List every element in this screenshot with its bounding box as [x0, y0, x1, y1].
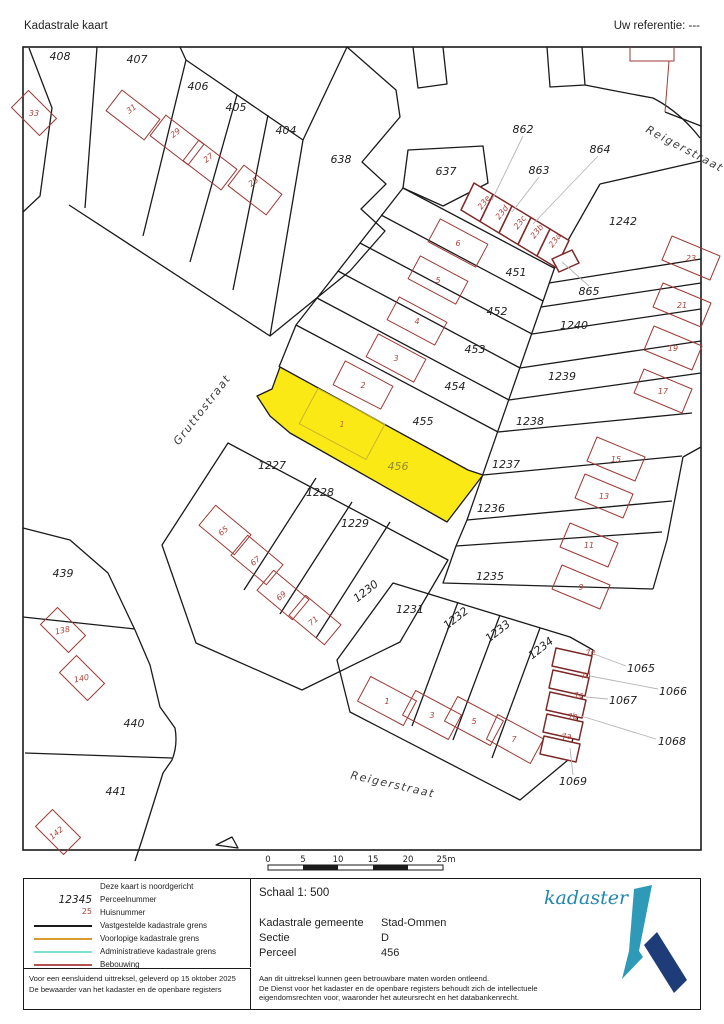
parcel-number-1238: 1238 [516, 415, 544, 428]
house-number-3: 3 [393, 354, 398, 363]
house-number-19: 19 [668, 344, 678, 353]
svg-text:15: 15 [368, 855, 379, 865]
house-number-21: 21 [677, 301, 687, 310]
street-name-Reigerstraat: Reigerstraat [349, 769, 436, 801]
house-number-71: 71 [307, 614, 321, 627]
house-number-31: 31 [125, 102, 139, 115]
black-line-sample [34, 925, 92, 927]
street-name-Reigerstraat: Reigerstraat [644, 123, 724, 175]
parcel-number-441: 441 [106, 785, 127, 798]
parcel-number-sample: 12345 [24, 894, 92, 906]
svg-text:25m: 25m [436, 855, 455, 865]
legend-row-voorlopige-grens: Voorlopige kadastrale grens [24, 933, 250, 945]
parcel-number-1228: 1228 [306, 486, 334, 499]
parcel-number-439: 439 [53, 567, 74, 580]
house-number-27: 27 [202, 151, 216, 165]
disclaimer-text: Aan dit uittreksel kunnen geen betrouwba… [259, 974, 574, 1003]
parcel-number-1231: 1231 [396, 603, 424, 616]
parcel-number-455: 455 [413, 415, 434, 428]
parcel-number-864: 864 [590, 143, 611, 156]
info-panel: Deze kaart is noordgericht 12345 Perceel… [23, 878, 701, 1010]
house-number-sample: 25 [24, 907, 92, 916]
red-line-sample [34, 964, 92, 966]
kadaster-logo: kadaster [544, 883, 694, 1003]
house-number-7e: 7e [585, 647, 596, 657]
house-number-11: 11 [584, 541, 594, 550]
parcel-number-453: 453 [465, 343, 486, 356]
house-number-25: 25 [247, 175, 261, 188]
cadastral-map: 4084074064054046386378628638648654514524… [0, 0, 724, 885]
house-number-5: 5 [435, 276, 440, 285]
svg-text:5: 5 [300, 855, 305, 865]
legend-row-north: Deze kaart is noordgericht [24, 881, 250, 893]
parcel-number-456: 456 [388, 460, 409, 473]
house-number-7c: 7c [573, 690, 584, 700]
parcel-number-638: 638 [331, 153, 352, 166]
house-number-23: 23 [686, 254, 696, 263]
legend: Deze kaart is noordgericht 12345 Perceel… [24, 879, 251, 967]
house-number-1: 1 [339, 420, 344, 429]
detail-row-perceel: Perceel456 [259, 947, 559, 962]
house-number-33: 33 [29, 109, 39, 118]
parcel-number-1235: 1235 [476, 570, 504, 583]
legend-row-administratieve-grens: Administratieve kadastrale grens [24, 946, 250, 958]
svg-text:0: 0 [265, 855, 270, 865]
orange-line-sample [34, 938, 92, 940]
parcel-number-863: 863 [529, 164, 550, 177]
house-number-13: 13 [599, 492, 609, 501]
parcel-number-454: 454 [445, 380, 466, 393]
parcel-number-865: 865 [579, 285, 600, 298]
parcel-number-408: 408 [50, 50, 71, 63]
house-number-67: 67 [249, 554, 263, 568]
house-number-6: 6 [455, 239, 460, 248]
parcel-number-862: 862 [513, 123, 534, 136]
parcel-number-1065: 1065 [627, 662, 655, 675]
house-number-65: 65 [217, 524, 231, 537]
parcel-number-452: 452 [487, 305, 508, 318]
house-number-4: 4 [414, 317, 419, 326]
svg-text:10: 10 [333, 855, 344, 865]
map-canvas: 4084074064054046386378628638648654514524… [0, 0, 724, 880]
parcel-number-637: 637 [436, 165, 457, 178]
house-number-17: 17 [658, 387, 669, 396]
parcel-number-1069: 1069 [559, 775, 587, 788]
legend-row-huisnummer: 25 Huisnummer [24, 907, 250, 919]
parcel-number-1068: 1068 [658, 735, 686, 748]
parcel-number-1240: 1240 [560, 319, 588, 332]
house-number-15: 15 [611, 455, 621, 464]
kadaster-logo-mark [544, 883, 694, 1003]
house-number-1: 1 [384, 697, 389, 706]
house-number-142: 142 [48, 825, 65, 842]
legend-row-perceelnummer: 12345 Perceelnummer [24, 894, 250, 906]
house-number-140: 140 [73, 673, 90, 685]
parcel-number-1239: 1239 [548, 370, 576, 383]
parcel-number-1242: 1242 [609, 215, 637, 228]
parcel-number-405: 405 [226, 101, 247, 114]
strip-parcels [461, 183, 592, 762]
parcel-number-407: 407 [127, 53, 148, 66]
detail-row-sectie: SectieD [259, 932, 559, 947]
house-number-2: 2 [360, 381, 365, 390]
house-number-138: 138 [54, 625, 71, 637]
parcel-number-1067: 1067 [609, 694, 637, 707]
house-number-3: 3 [429, 711, 434, 720]
scale-bar: 0 5 10 15 20 25m [265, 855, 455, 870]
house-number-7: 7 [511, 735, 517, 744]
legend-row-vastgestelde-grens: Vastgestelde kadastrale grens [24, 920, 250, 932]
parcel-details: Schaal 1: 500 Kadastrale gemeenteStad-Om… [259, 879, 559, 1009]
certificate-note: Voor een eensluidend uittreksel, gelever… [24, 968, 251, 1009]
house-number-69: 69 [275, 589, 289, 602]
parcel-number-1236: 1236 [477, 502, 505, 515]
house-number-5: 5 [471, 717, 476, 726]
house-number-9: 9 [578, 583, 583, 592]
cadastral-extract-page: { "header": { "title": "Kadastrale kaart… [0, 0, 724, 1024]
parcel-number-1066: 1066 [659, 685, 687, 698]
house-number-7d: 7d [580, 670, 592, 680]
street-name-Gruttostraat: Gruttostraat [171, 372, 234, 448]
parcel-number-1229: 1229 [341, 517, 369, 530]
parcel-number-1230: 1230 [351, 578, 381, 605]
parcel-number-404: 404 [276, 124, 297, 137]
parcel-number-406: 406 [188, 80, 209, 93]
parcel-number-1237: 1237 [492, 458, 520, 471]
svg-text:20: 20 [403, 855, 414, 865]
house-number-7b: 7b [567, 711, 578, 721]
parcel-number-1234: 1234 [526, 635, 556, 662]
detail-row-gemeente: Kadastrale gemeenteStad-Ommen [259, 917, 559, 932]
house-number-7a: 7a [561, 731, 572, 741]
house-number-29: 29 [169, 126, 183, 139]
parcel-number-451: 451 [506, 266, 527, 279]
parcel-number-440: 440 [124, 717, 145, 730]
cyan-line-sample [34, 951, 92, 953]
scale-label: Schaal 1: 500 [259, 887, 329, 899]
parcel-number-1227: 1227 [258, 459, 286, 472]
